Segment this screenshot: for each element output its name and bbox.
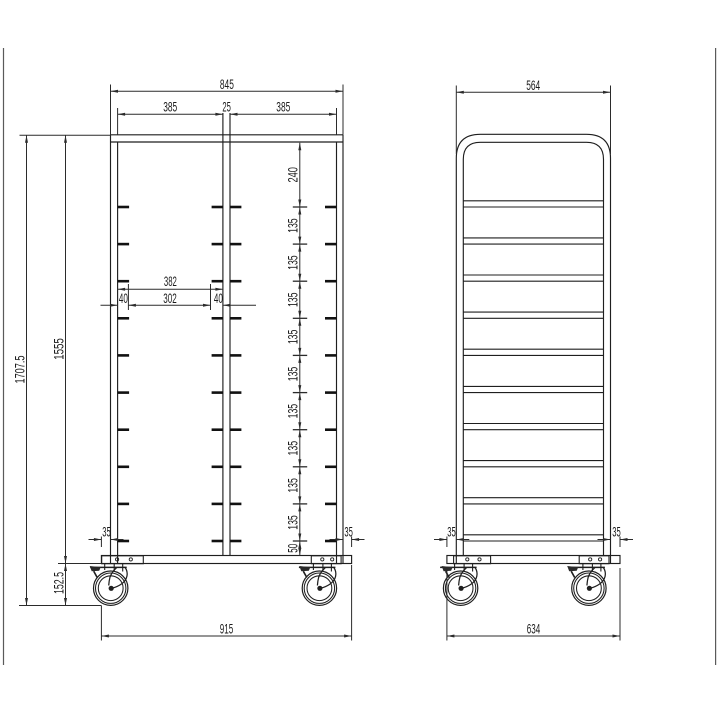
svg-text:1555: 1555: [51, 338, 67, 360]
svg-text:40: 40: [119, 290, 128, 306]
svg-text:135: 135: [285, 292, 301, 307]
svg-text:135: 135: [285, 478, 301, 493]
svg-text:135: 135: [285, 404, 301, 419]
svg-text:135: 135: [285, 441, 301, 456]
svg-text:25: 25: [222, 98, 231, 114]
svg-text:135: 135: [285, 330, 301, 345]
svg-text:35: 35: [447, 523, 456, 539]
svg-text:915: 915: [220, 621, 234, 637]
svg-text:35: 35: [344, 523, 353, 539]
svg-text:50: 50: [285, 544, 301, 553]
svg-text:1707.5: 1707.5: [12, 355, 28, 383]
svg-text:135: 135: [285, 367, 301, 382]
svg-text:135: 135: [285, 255, 301, 270]
svg-text:564: 564: [526, 77, 540, 93]
svg-text:845: 845: [220, 76, 234, 92]
svg-text:240: 240: [285, 167, 301, 183]
svg-text:385: 385: [163, 98, 177, 114]
svg-text:152.5: 152.5: [51, 572, 67, 594]
svg-text:135: 135: [285, 218, 301, 233]
svg-text:302: 302: [163, 290, 177, 306]
svg-text:135: 135: [285, 515, 301, 530]
svg-text:385: 385: [276, 98, 290, 114]
svg-text:634: 634: [527, 621, 541, 637]
svg-text:382: 382: [164, 273, 177, 289]
svg-text:35: 35: [612, 523, 621, 539]
svg-text:35: 35: [102, 523, 111, 539]
svg-text:40: 40: [214, 290, 223, 306]
